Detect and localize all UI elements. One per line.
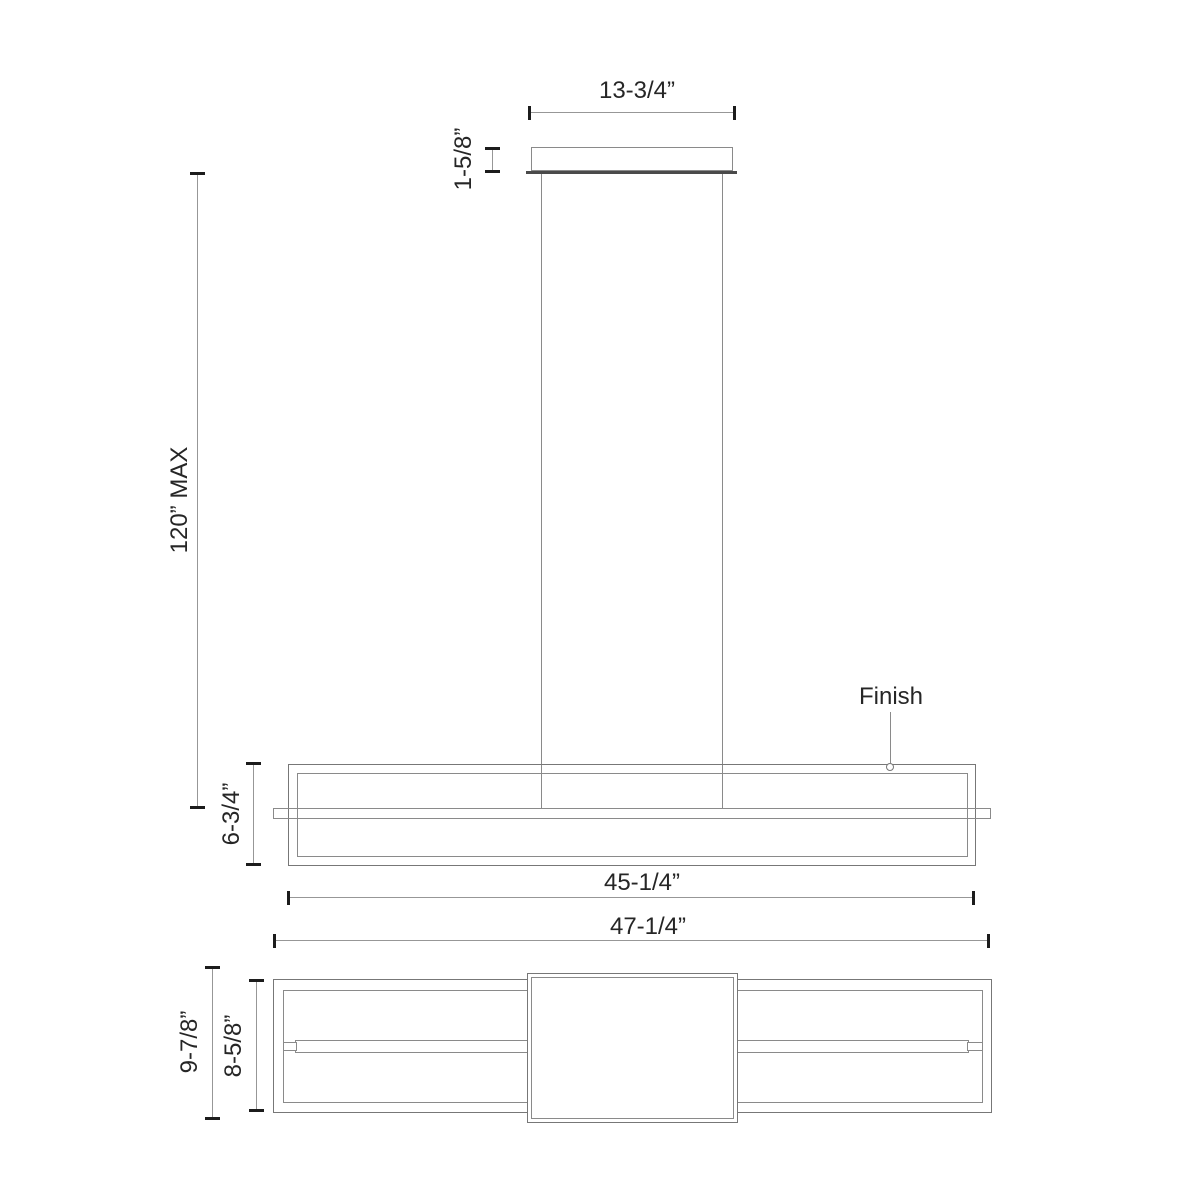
canopy-height-dimension-line <box>492 148 493 172</box>
canopy-width-dimension-label: 13-3/4” <box>599 79 675 103</box>
finish-callout-circle <box>886 763 894 771</box>
suspension-max-dimension-line <box>197 173 198 808</box>
fixture-height-dimension-label: 6-3/4” <box>220 783 244 846</box>
canopy-width-dimension-line <box>529 112 735 113</box>
canopy-mounting-plate <box>526 171 737 174</box>
suspension-max-dimension-label: 120” MAX <box>168 447 192 554</box>
linear-pendant-dimension-drawing: Finish 13-3/4” 1-5/8” 120” MAX 6-3/4” 45… <box>0 0 1200 1200</box>
overall-length-dimension-line <box>274 940 989 941</box>
canopy-height-dimension-label: 1-5/8” <box>452 128 476 191</box>
frame-depth-dimension-label: 8-5/8” <box>222 1015 246 1078</box>
canopy-front-outline <box>531 147 733 171</box>
suspension-cable-left <box>541 174 542 808</box>
overall-depth-dimension-label: 9-7/8” <box>178 1011 202 1074</box>
suspension-cable-right <box>722 174 723 808</box>
light-bar-front <box>273 808 991 819</box>
finish-leader-line <box>890 712 891 763</box>
finish-label: Finish <box>859 685 923 709</box>
frame-depth-dimension-line <box>256 980 257 1111</box>
canopy-plan-inner-outline <box>531 977 734 1119</box>
fixture-height-dimension-line <box>253 763 254 865</box>
light-bar-end-connector-right <box>967 1042 983 1051</box>
overall-length-dimension-label: 47-1/4” <box>610 915 686 939</box>
frame-length-dimension-line <box>288 897 974 898</box>
overall-depth-dimension-line <box>212 967 213 1119</box>
frame-length-dimension-label: 45-1/4” <box>604 871 680 895</box>
light-bar-end-connector-left <box>283 1042 297 1051</box>
